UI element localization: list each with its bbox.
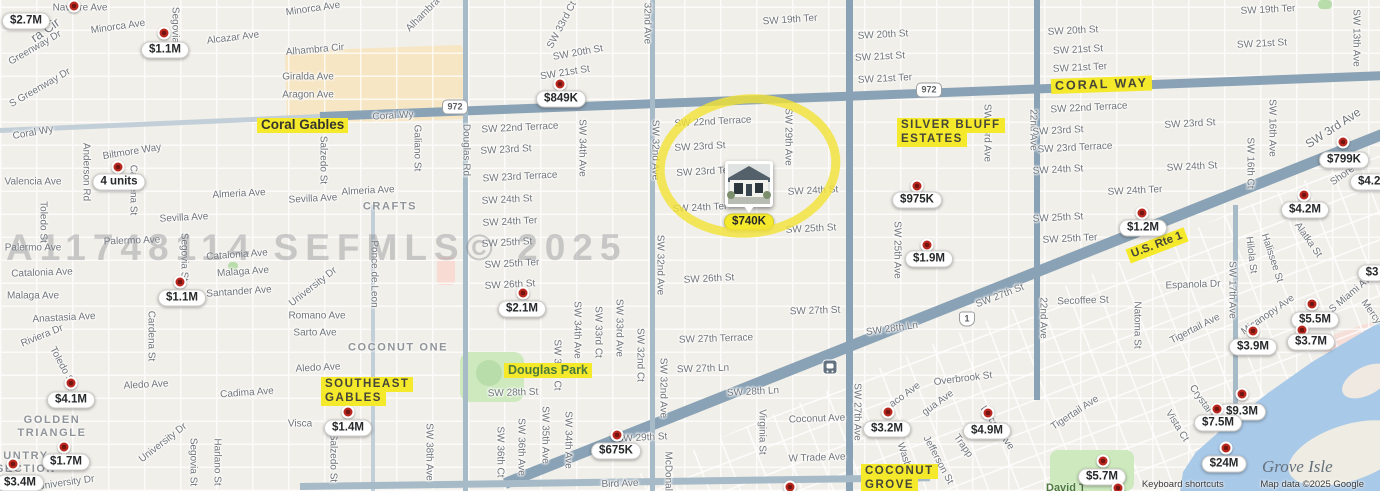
subject-highlight-circle — [0, 0, 1380, 491]
map-data-attribution: Map data ©2025 Google — [1260, 479, 1364, 490]
subject-property-photo[interactable] — [725, 161, 773, 207]
keyboard-shortcuts-link[interactable]: Keyboard shortcuts — [1142, 479, 1224, 490]
map-canvas[interactable]: 9729721 Navarre AveMinorca AveMinorca Av… — [0, 0, 1380, 491]
